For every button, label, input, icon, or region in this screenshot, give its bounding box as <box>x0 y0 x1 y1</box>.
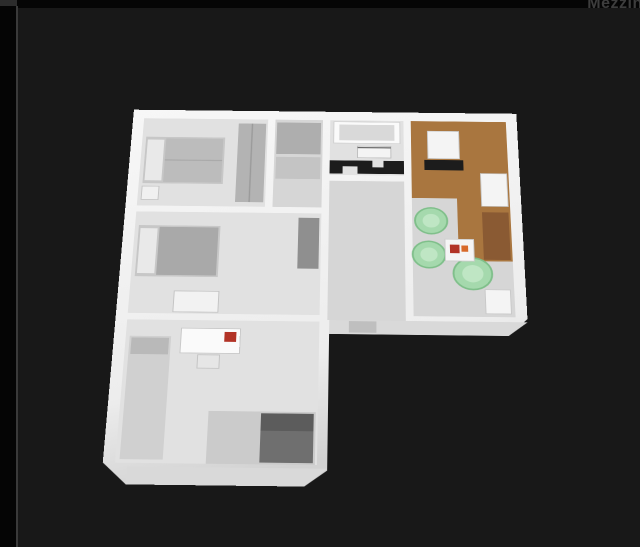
bed-pillow <box>130 337 169 354</box>
closet-lower <box>275 157 320 179</box>
counter-notch-2 <box>372 161 383 168</box>
screenshot-stage: Mezzino <box>0 0 640 547</box>
bookcase-brown <box>482 212 511 260</box>
counter-notch-1 <box>343 166 358 173</box>
wall-cabinet-bathroom <box>358 146 391 158</box>
red-desk-chair <box>224 332 236 342</box>
green-armchair-2 <box>413 241 446 268</box>
floorplan-svg <box>101 110 537 490</box>
orange-table-decor <box>461 246 468 252</box>
top-left-edge-cap <box>0 0 17 6</box>
double-bed-middle-left <box>135 225 221 277</box>
blanket-fold-line <box>165 160 222 161</box>
closet-upper <box>276 122 321 154</box>
kitchen-wall-cabinets <box>480 174 508 207</box>
slab-face-left-wing <box>126 466 327 487</box>
shower-glass-panel <box>260 413 313 431</box>
fridge-cabinet <box>427 131 459 159</box>
left-divider-line <box>16 6 18 547</box>
double-bed-top-left <box>142 137 225 184</box>
green-armchair-3 <box>453 258 493 290</box>
desk-stool <box>197 355 220 369</box>
bathtub <box>334 122 400 144</box>
green-armchair-1 <box>415 208 448 234</box>
watermark-text: Mezzino <box>587 0 640 13</box>
black-cooktop-counter <box>424 160 463 171</box>
bathtub-basin <box>339 125 394 141</box>
nightstand-top-left <box>141 186 159 200</box>
bed-pillow <box>145 140 165 181</box>
bed-blanket <box>156 227 218 276</box>
entrance-door <box>349 321 377 333</box>
dresser-middle-left <box>173 291 219 312</box>
kitchen-lower-cabinet <box>485 290 511 314</box>
red-table-decor <box>450 245 460 254</box>
floorplan-3d-scene[interactable] <box>101 110 537 490</box>
shower-enclosure <box>259 413 313 463</box>
floor-corridor <box>327 181 406 321</box>
coffee-table <box>445 239 474 261</box>
black-vanity-counter <box>330 160 405 174</box>
tall-wardrobe-middle-left <box>297 218 319 269</box>
wardrobe-top-left <box>235 123 266 202</box>
